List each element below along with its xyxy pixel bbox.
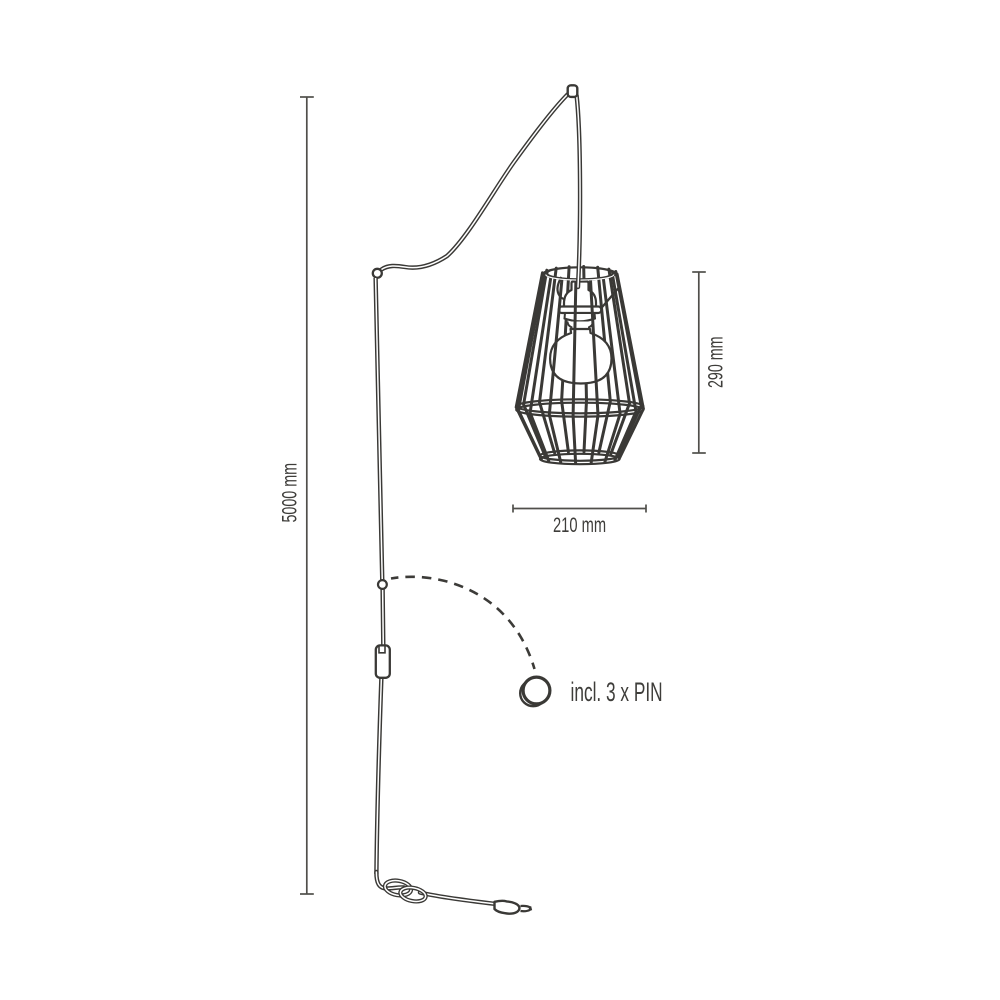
svg-text:5000 mm: 5000 mm [278, 463, 301, 522]
svg-text:290 mm: 290 mm [704, 336, 727, 388]
svg-text:incl. 3 x PIN: incl. 3 x PIN [571, 676, 663, 707]
svg-text:210 mm: 210 mm [553, 513, 606, 536]
